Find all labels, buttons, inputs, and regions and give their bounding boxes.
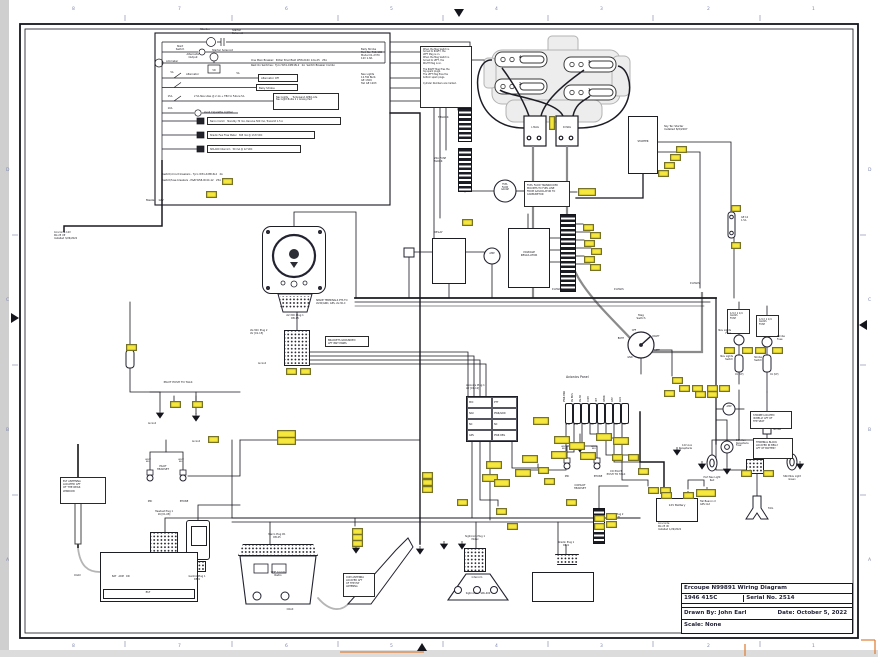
wire-tag bbox=[707, 391, 718, 398]
wire-tag bbox=[277, 437, 296, 445]
text-label: Starter Solenoid bbox=[232, 29, 243, 35]
wire-tag bbox=[566, 499, 577, 506]
text-label: VOLTAGE REGULATOR bbox=[521, 251, 537, 257]
drawing-scale: Scale: None bbox=[682, 622, 723, 630]
text-label: P-LEADS bbox=[552, 289, 562, 292]
text-label: On (UP) bbox=[770, 374, 778, 377]
wire-tag bbox=[772, 347, 783, 354]
text-label: VR bbox=[212, 70, 215, 73]
text-label: 4 bbox=[519, 55, 522, 59]
text-label: Switch/circuit breakers - Tyco W31-X2M1N… bbox=[162, 174, 223, 177]
avionics-breaker bbox=[565, 403, 573, 424]
wire-tag bbox=[208, 436, 219, 443]
wire-tag bbox=[594, 515, 605, 522]
plug-table-cell: NC bbox=[492, 419, 517, 430]
text-label: Avionics Plug 1 AV [01-12] bbox=[466, 385, 485, 391]
wire-tag bbox=[591, 248, 602, 255]
avionics-breaker bbox=[621, 403, 629, 424]
wire-tag bbox=[170, 401, 181, 408]
text-label: VHF Comm Radio bbox=[271, 571, 286, 577]
wire-tag bbox=[594, 523, 605, 530]
plug-table-cell: PWR/GRD bbox=[492, 408, 517, 419]
text-label: Intercom bbox=[472, 577, 483, 580]
wire-tag bbox=[422, 479, 433, 486]
tail-light bbox=[746, 496, 768, 519]
text-label: 10A bbox=[168, 108, 173, 111]
plug-table-cell: PWR REG bbox=[492, 430, 517, 441]
text-label: PHONE bbox=[180, 501, 188, 504]
note-box: ELT ANTENNA LOCATED AFT OF THE REAR WIND… bbox=[60, 477, 106, 504]
ground-symbol bbox=[797, 461, 804, 469]
inline-fuse bbox=[126, 350, 134, 368]
note-box: TERMINAL BLOCK LOCATED IN BELLY AFT OF B… bbox=[753, 438, 793, 459]
wire-tag bbox=[612, 454, 623, 461]
wire-tag bbox=[731, 242, 741, 249]
text-label: 1 bbox=[588, 88, 591, 92]
ground-symbol bbox=[441, 541, 448, 549]
text-label: Rest On Switches: Tyco W31-X2M1N-2 2A Sw… bbox=[251, 65, 335, 68]
text-label: Av Gnd bbox=[258, 363, 266, 366]
wire-tag bbox=[606, 513, 617, 520]
drawn-by: Drawn By: John Earl bbox=[682, 610, 776, 618]
wire-tag bbox=[606, 521, 617, 528]
nav-lights-switch bbox=[735, 355, 743, 372]
wire-tag bbox=[670, 154, 681, 161]
wire-tag bbox=[584, 240, 595, 247]
text-label: Starter Solenoid bbox=[212, 49, 233, 52]
shadin-plug1-dsub bbox=[554, 554, 580, 565]
avionics-breaker-label: AUX bbox=[620, 378, 622, 402]
avionics-breaker-label: PWR BKR bbox=[564, 378, 566, 402]
text-label: One Main Breaker: Potter Brumfield W58-X… bbox=[251, 60, 327, 63]
wire-tag bbox=[554, 436, 570, 444]
plug-table-cell: MIC bbox=[467, 397, 492, 408]
text-label: RELAY bbox=[434, 231, 443, 234]
note-box: SPA-400 Intercom 50 mA @ 12 VDC bbox=[207, 145, 301, 153]
wire-tag bbox=[719, 385, 730, 392]
wire-tag bbox=[692, 385, 703, 392]
vhf-radio-body bbox=[240, 556, 316, 604]
avionics-breaker-amp: 2A bbox=[623, 424, 626, 427]
text-label: Avionics Panel bbox=[566, 376, 589, 380]
text-label: WHT/ BLU bbox=[591, 446, 597, 451]
wire-tag bbox=[578, 188, 596, 196]
wire-tag bbox=[462, 219, 473, 226]
wire-tag bbox=[724, 347, 735, 354]
text-label: AMP bbox=[727, 406, 732, 409]
title-block: Ercoupe N99891 Wiring Diagram 1946 415C … bbox=[681, 583, 853, 634]
text-label: Av Gnd bbox=[148, 423, 156, 426]
text-label: Belly Strobe Part No. 716-100 Model 01-2… bbox=[361, 49, 382, 61]
wire-tag bbox=[707, 385, 718, 392]
note-box: Alternator Off bbox=[258, 74, 298, 82]
text-label: WHT/ BLU bbox=[145, 459, 151, 464]
text-label: Concorde 12V RG 25 XP Installed 3/26/202… bbox=[54, 232, 77, 240]
text-label: 2 bbox=[519, 82, 522, 86]
wire-tag bbox=[533, 417, 549, 425]
elt-antenna-base bbox=[75, 502, 81, 544]
text-label: 2 5A Nav Lites @ 2.1A + TBX to Future 5A bbox=[194, 96, 244, 99]
text-label: RIGHT bbox=[652, 336, 659, 339]
text-label: Garmin Plug 1 DB-9 bbox=[189, 576, 206, 582]
plug-table-cell: NAV bbox=[467, 408, 492, 419]
note-box: Belly Strobe bbox=[256, 84, 298, 91]
text-label: 3 bbox=[588, 60, 591, 64]
wire-tag bbox=[696, 489, 716, 497]
text-label: AMP bbox=[489, 253, 494, 256]
text-label: On (UP) bbox=[735, 374, 743, 377]
text-label: Nav Lights 12.5W Bulb GE 1309 Tail GE 12… bbox=[361, 74, 377, 86]
avionics-breaker bbox=[573, 403, 581, 424]
text-label: Strobe bbox=[773, 429, 781, 432]
wire-tag bbox=[222, 178, 233, 185]
battery-box bbox=[656, 498, 698, 522]
text-label: COPILOT HEADSET bbox=[574, 484, 586, 490]
wire-tag bbox=[648, 487, 659, 494]
wire-tag bbox=[544, 478, 555, 485]
terminal-strip bbox=[560, 214, 576, 292]
narco-plug-fan bbox=[238, 544, 318, 556]
drawing-title: Ercoupe N99891 Wiring Diagram bbox=[682, 585, 789, 593]
wire-tag bbox=[676, 146, 687, 153]
plug-table-cell: PTT bbox=[492, 397, 517, 408]
wire-tag bbox=[628, 454, 639, 461]
note-box: BRACKETS GROUNDED AFT INST PANEL bbox=[325, 336, 369, 347]
text-label: 15A bbox=[168, 96, 173, 99]
t-block-strip bbox=[458, 108, 472, 142]
text-label: Sky Tec Starter Installed 8/2/2007 bbox=[664, 125, 688, 131]
avionics-breaker-amp: 15A bbox=[566, 424, 570, 427]
text-label: Stbd Nav Light Green bbox=[783, 476, 801, 482]
text-label: 20A FUSE BLOCK bbox=[434, 158, 446, 164]
ground-symbol bbox=[699, 461, 706, 469]
plug-table-cell: GPS bbox=[467, 430, 492, 441]
wire-tag bbox=[679, 385, 690, 392]
text-label: R MAG bbox=[563, 127, 571, 130]
wire-tag bbox=[457, 499, 468, 506]
av30-plug1-pins bbox=[280, 296, 310, 309]
wire-tag bbox=[549, 116, 555, 130]
voltage-regulator-box bbox=[508, 228, 550, 288]
text-label: WHT/ BLU bbox=[178, 459, 184, 464]
strobe-fuse bbox=[762, 337, 772, 347]
text-label: GE 12 1.5A bbox=[741, 217, 748, 223]
wire-tag bbox=[583, 224, 594, 231]
avionics-breaker-label: AV-30 bbox=[580, 378, 582, 402]
relay-box bbox=[432, 238, 466, 284]
wire-tag bbox=[580, 452, 596, 460]
text-label: OFF bbox=[632, 330, 636, 333]
text-label: LEFT bbox=[654, 350, 659, 353]
av30-bezel bbox=[262, 226, 326, 294]
text-label: COAX bbox=[287, 609, 294, 612]
avionics-breaker-amp: 5A bbox=[583, 424, 586, 427]
wire-tag bbox=[522, 455, 538, 463]
garmin-device-screen bbox=[191, 526, 207, 546]
wire-tag bbox=[286, 368, 297, 375]
ground-symbol bbox=[157, 410, 164, 418]
text-label: 12V Aux Receptacle bbox=[679, 445, 692, 451]
diode bbox=[404, 248, 414, 257]
text-label: AV-30C Plug 1 DB-15 bbox=[286, 315, 304, 321]
text-label: MIC bbox=[148, 501, 152, 504]
text-label: PILOT PUSH TO TALK bbox=[164, 381, 193, 384]
wire-tag bbox=[515, 469, 531, 477]
avionics-breaker-amp: 3A bbox=[607, 424, 610, 427]
wire-tag bbox=[638, 468, 649, 475]
note-box: FUEL FLOW TRANSDUCER MOUNTS TO FUEL LINE… bbox=[524, 181, 570, 207]
note-box: COM ANTENNA LOCATED AFT OF THE ELT ANTEN… bbox=[343, 573, 375, 597]
text-label: Alternator Output bbox=[186, 53, 199, 59]
text-label: 15A Aux Receptacle Fuse bbox=[736, 440, 749, 448]
starter-box bbox=[628, 116, 658, 174]
avionics-plug-table: MICPTTNAVPWR/GRDNCNCGPSPWR REG bbox=[466, 396, 518, 442]
amp-gauge bbox=[484, 248, 500, 264]
wire-tag bbox=[661, 492, 672, 499]
text-label: 5A bbox=[170, 72, 173, 75]
avionics-breaker-label: INT bbox=[596, 378, 598, 402]
text-label: Sigtronics SPA-400 bbox=[466, 593, 491, 596]
avionics-breaker bbox=[605, 403, 613, 424]
wire-tag bbox=[507, 523, 518, 530]
avionics-breaker-label: COM bbox=[588, 378, 590, 402]
text-label: Strobe Switch bbox=[754, 357, 762, 363]
avionics-breaker-label: UAT bbox=[612, 378, 614, 402]
text-label: Switch/fuse breakers - P&B W58-XC4C-12 2… bbox=[162, 180, 221, 183]
wire-tag bbox=[664, 390, 675, 397]
note-box: Narco Comm Standby 70 mA, Receive 500 mA… bbox=[207, 117, 341, 125]
text-label: Sigtronics Plug 1 Molex bbox=[465, 536, 485, 542]
text-label: 12V Battery bbox=[669, 504, 686, 507]
wire-tag bbox=[300, 368, 311, 375]
wire-tag bbox=[613, 437, 629, 445]
wire-tag bbox=[486, 461, 502, 469]
text-label: Alternator bbox=[186, 73, 199, 76]
text-label: Nav Lights Switch bbox=[720, 356, 733, 362]
serial-number: Serial No. 2514 bbox=[743, 595, 796, 603]
wire-tag bbox=[590, 232, 601, 239]
note-box: Nav Lights Turbowand AERO-Lite Nav Light… bbox=[273, 93, 339, 110]
text-label: Shadin Plug 1 DB-9 bbox=[558, 542, 574, 548]
wire-tag bbox=[551, 451, 567, 459]
text-label: Tail Beacon X GPS Out bbox=[700, 501, 716, 507]
ground-symbol bbox=[193, 413, 200, 421]
aircraft-model: 1946 415C bbox=[682, 595, 743, 603]
text-label: Headset Plug 1 16 [01-08] bbox=[155, 511, 173, 517]
wire-tag bbox=[126, 344, 137, 351]
nav-lights-fuse bbox=[734, 335, 744, 345]
wire-tag bbox=[731, 205, 741, 212]
text-label: GND bbox=[627, 357, 632, 360]
text-label: Ammeter bbox=[166, 60, 178, 63]
text-label: Narco Plug #1 DB-25 bbox=[268, 534, 285, 540]
text-label: BAT ARM ON bbox=[112, 576, 129, 579]
wire-tag bbox=[192, 401, 203, 408]
avionics-breaker bbox=[613, 403, 621, 424]
avionics-breaker-amp: 5A bbox=[599, 424, 602, 427]
text-label: TAIL bbox=[768, 507, 773, 510]
wire-tag bbox=[494, 479, 510, 487]
sigtronics-plug bbox=[464, 548, 486, 572]
wire-tag bbox=[496, 508, 507, 515]
text-label: COAX bbox=[74, 575, 81, 578]
wire-tag bbox=[695, 391, 706, 398]
text-label: MIC bbox=[565, 476, 569, 479]
avionics-breaker-label: XPDR bbox=[604, 378, 606, 402]
text-label: Nav Lights Fuse bbox=[718, 330, 731, 336]
text-label: PHONE bbox=[594, 476, 602, 479]
wire-tag bbox=[683, 492, 694, 499]
avionics-breaker-amp: 2A bbox=[615, 424, 618, 427]
text-label: Mag Switch bbox=[637, 314, 646, 320]
wire-tag bbox=[206, 191, 217, 198]
av30-plug2-block bbox=[284, 330, 310, 366]
shadin-unit bbox=[532, 572, 594, 602]
text-label: 5A bbox=[236, 73, 239, 76]
drawing-date: Date: October 5, 2022 bbox=[776, 610, 850, 618]
text-label: P-LEADS bbox=[614, 289, 624, 292]
wire-tag bbox=[352, 540, 363, 547]
avionics-breaker bbox=[581, 403, 589, 424]
text-label: ELT bbox=[146, 591, 151, 594]
text-label: L MAG bbox=[531, 127, 539, 130]
p-lead-wires bbox=[533, 146, 702, 352]
wire-tag bbox=[755, 347, 766, 354]
text-label: Av Gnd bbox=[192, 441, 200, 444]
wire-tag bbox=[664, 162, 675, 169]
avionics-breaker bbox=[597, 403, 605, 424]
text-label: STARTER bbox=[637, 141, 648, 144]
text-label: BOTH bbox=[618, 338, 624, 341]
avionics-breaker-label: AV BUS bbox=[572, 378, 574, 402]
avionics-breaker-amp: 10A bbox=[574, 424, 578, 427]
text-label: T-BLOCK bbox=[438, 117, 448, 120]
plug-table-cell: NC bbox=[467, 419, 492, 430]
wire-tag bbox=[596, 433, 612, 441]
text-label: CO PILOT PUSH TO TALK bbox=[607, 470, 626, 476]
text-label: Concorde RG 25 XC Installed 1/29/2022 bbox=[658, 523, 681, 531]
text-label: SPADE TERMINALS PTS TO AV30/GRD, GPS, AV… bbox=[316, 300, 348, 306]
ground-symbol bbox=[417, 546, 424, 554]
wire-tag bbox=[584, 256, 595, 263]
fuse-block-strip bbox=[458, 148, 472, 192]
note-box: Shadin Fuel Flow Meter 365 mA @ 13.8 VDC bbox=[207, 131, 315, 139]
wire-tag bbox=[658, 170, 669, 177]
wire-tag bbox=[569, 442, 585, 450]
text-label: Strobe Fuse bbox=[777, 336, 785, 342]
wire-tag bbox=[741, 470, 752, 477]
avionics-breaker bbox=[589, 403, 597, 424]
text-label: FUEL FLOW GAUGE bbox=[501, 184, 509, 192]
text-label: Port Nav Light Red bbox=[704, 477, 721, 483]
text-label: Start Switch bbox=[176, 45, 185, 51]
text-label: Master 12V bbox=[146, 199, 164, 202]
ground-symbol bbox=[724, 466, 731, 474]
wiring-diagram-sheet: MICPTTNAVPWR/GRDNCNCGPSPWR REG Ercoupe N… bbox=[0, 0, 878, 657]
wire-tag bbox=[590, 264, 601, 271]
wire-tag bbox=[672, 377, 683, 384]
text-label: AV-30C Plug 2 AV [01-15] bbox=[250, 330, 268, 336]
text-label: Starter bbox=[200, 28, 210, 31]
avionics-breaker-amp: 5A bbox=[591, 424, 594, 427]
wire-tag bbox=[538, 467, 549, 474]
note-box: When the Mag Switch is turned to RIGHT, … bbox=[420, 46, 472, 108]
text-label: Avail Cigarette Lighter bbox=[204, 111, 233, 114]
note-box: STROBE LOCATED IN BELLY AFT OF THE SEAT bbox=[750, 411, 792, 429]
wire-tag bbox=[422, 472, 433, 479]
wire-tag bbox=[742, 347, 753, 354]
note-box: 1/4 X 1 1/4 GLASS FUSE bbox=[756, 315, 779, 337]
wire-tag bbox=[422, 486, 433, 493]
strobe-switch bbox=[763, 355, 771, 372]
text-label: PILOT HEADSET bbox=[157, 465, 169, 471]
wire-tag bbox=[763, 470, 774, 477]
text-label: P-LEADS bbox=[690, 283, 700, 286]
